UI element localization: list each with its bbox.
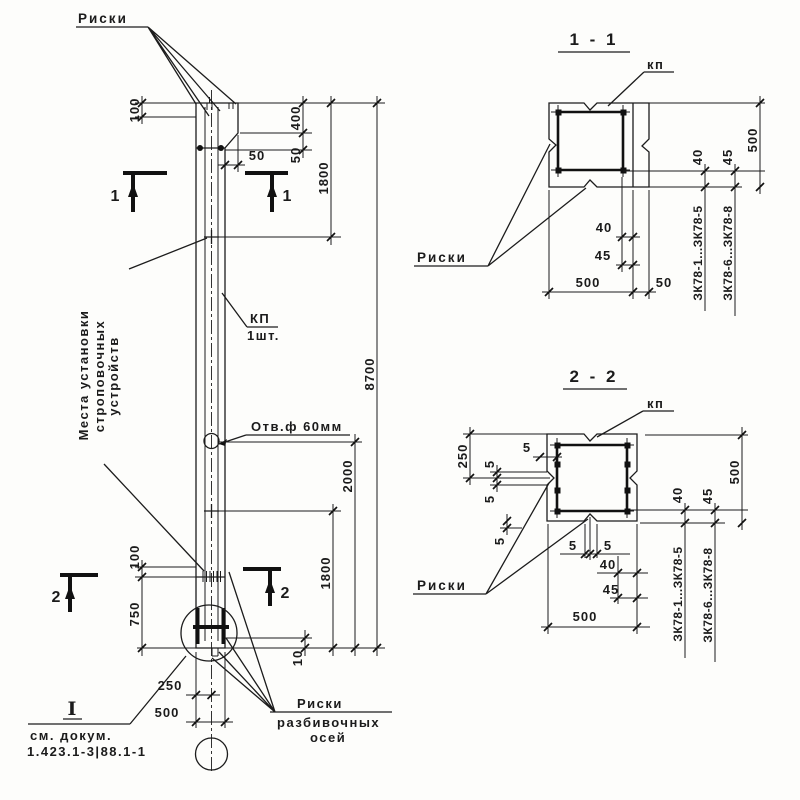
dim-1800-bottom: 1800 (318, 557, 333, 590)
s22-dim-500-bottom: 500 (573, 609, 598, 624)
hole-label: Отв.ф 60мм (251, 419, 343, 434)
mesta-line1: Места установки (76, 310, 91, 441)
section-1-1: 1 - 1 кп Риски 40 45 500 50 40 (414, 30, 765, 316)
section-2-2-kp-callout: кп (597, 396, 674, 437)
riski-axes-line1: Риски (297, 696, 343, 711)
s11-dim-500-bottom: 500 (576, 275, 601, 290)
s11-dim-45-right: 45 (720, 149, 735, 165)
section-2-2-riski-label: Риски (417, 578, 467, 593)
section-2-2-title: 2 - 2 (569, 367, 618, 386)
riski-top-callout: Риски (76, 11, 236, 116)
detail-mark-label: I (68, 698, 77, 720)
s22-dim-40-right: 40 (670, 487, 685, 503)
section-2-2-body (547, 434, 637, 521)
dim-50-horiz: 50 (249, 148, 265, 163)
s22-dim-40-bottom: 40 (600, 557, 616, 572)
see-doc-line2: 1.423.1-3|88.1-1 (27, 744, 146, 759)
section-1-1-body (549, 103, 649, 187)
section-2-2-kp-label: кп (647, 396, 664, 411)
s11-dim-45-bottom: 45 (595, 248, 611, 263)
section-2-2: 2 - 2 кп Риски 250 5 (413, 367, 748, 662)
s22-dim-5-left-upper: 5 (482, 460, 497, 468)
dim-2000: 2000 (340, 460, 355, 493)
elevation-view: Риски Отв.ф 60мм КП 1шт. Мес (27, 11, 392, 773)
cut-2-right-label: 2 (281, 585, 290, 602)
s22-dim-45-right: 45 (700, 488, 715, 504)
cut-1-right-label: 1 (283, 188, 292, 205)
s22-dim-5-bottomleft: 5 (492, 537, 507, 545)
section-1-1-riski-label: Риски (417, 250, 467, 265)
dim-100-top: 100 (127, 98, 142, 123)
dim-400: 400 (288, 106, 303, 131)
column-bottom-detail (181, 605, 237, 661)
kp-label: КП (250, 311, 270, 326)
riski-top-label: Риски (78, 11, 128, 26)
dim-250: 250 (158, 678, 183, 693)
strop-devices (196, 145, 225, 582)
s22-marks-a-label: ЗК78-1...ЗК78-5 (671, 546, 685, 641)
s22-dim-5-bottom-a: 5 (569, 538, 577, 553)
s22-dim-5-left-lower: 5 (482, 495, 497, 503)
section-1-1-dimensions: 40 45 500 50 40 45 500 ЗК78-1...ЗК78-5 З… (542, 96, 765, 316)
mesta-line2: строповочных (92, 320, 107, 432)
s11-dim-500-right: 500 (745, 128, 760, 153)
column-outline (196, 90, 238, 773)
section-cut-2: 2 2 (52, 569, 290, 612)
riski-axes-line3: осей (310, 730, 346, 745)
s11-marks-a-label: ЗК78-1...ЗК78-5 (691, 205, 705, 300)
s22-marks-b-label: ЗК78-6...ЗК78-8 (701, 547, 715, 642)
s11-dim-50-bottom: 50 (656, 275, 672, 290)
section-cut-1: 1 1 (111, 173, 292, 212)
section-1-1-title: 1 - 1 (569, 30, 618, 49)
dim-100-bottom: 100 (127, 545, 142, 570)
see-doc-line1: см. докум. (30, 728, 112, 743)
strop-places-callout: Места установки строповочных устройств (76, 238, 207, 571)
hole-60mm: Отв.ф 60мм (204, 419, 350, 449)
s11-dim-40-right: 40 (690, 149, 705, 165)
s22-dim-5-topleft: 5 (523, 440, 531, 455)
section-1-1-riski-callout: Риски (414, 144, 586, 266)
dim-750: 750 (127, 602, 142, 627)
cut-2-left-label: 2 (52, 589, 61, 606)
column-drawing: Риски Отв.ф 60мм КП 1шт. Мес (0, 0, 800, 800)
drawing-sheet: Риски Отв.ф 60мм КП 1шт. Мес (0, 0, 800, 800)
section-1-1-kp-callout: кп (608, 57, 674, 106)
s22-dim-45-bottom: 45 (603, 582, 619, 597)
riski-axes-line2: разбивочных (277, 715, 380, 730)
kp-callout: КП 1шт. (222, 293, 280, 343)
dim-8700: 8700 (362, 358, 377, 391)
s11-dim-40-bottom: 40 (596, 220, 612, 235)
mesta-line3: устройств (106, 336, 121, 415)
elevation-dimensions: 100 400 50 50 1800 8700 2000 1800 100 75… (127, 96, 385, 726)
dim-10: 10 (290, 650, 305, 666)
s11-marks-b-label: ЗК78-6...ЗК78-8 (721, 205, 735, 300)
dim-1800-top: 1800 (316, 162, 331, 195)
dim-500: 500 (155, 705, 180, 720)
section-2-2-dimensions: 250 5 5 5 5 5 5 40 45 500 40 45 500 ЗК78… (455, 427, 748, 662)
dim-50-vert: 50 (288, 147, 303, 163)
s22-dim-250-left: 250 (455, 444, 470, 469)
section-1-1-kp-label: кп (647, 57, 664, 72)
s22-dim-5-bottom-b: 5 (604, 538, 612, 553)
s22-dim-500-right: 500 (727, 460, 742, 485)
cut-1-left-label: 1 (111, 188, 120, 205)
kp-qty-label: 1шт. (247, 328, 280, 343)
